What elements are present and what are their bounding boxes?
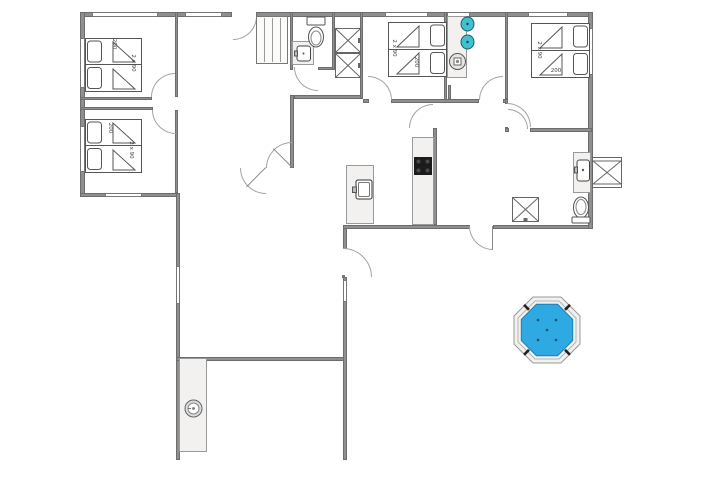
burner — [426, 169, 430, 173]
door-arc-wc — [294, 67, 318, 91]
bed-label: 200 — [551, 68, 562, 74]
toilet-cistern — [307, 17, 325, 25]
pillow — [88, 149, 102, 170]
wall — [391, 99, 479, 103]
door-leaf — [492, 226, 493, 250]
burner — [417, 160, 421, 164]
washing-machine-icon — [448, 52, 467, 71]
door-arc-terrace-east — [343, 248, 372, 277]
wall — [448, 85, 451, 99]
bed-label: 200 — [111, 39, 117, 50]
door-arc-terrace-south — [469, 226, 493, 250]
pillow — [574, 26, 588, 47]
window — [343, 280, 347, 302]
wall — [80, 97, 152, 100]
door-arc-kitchen — [409, 104, 433, 128]
window — [528, 12, 568, 17]
twin-basins-icon — [459, 16, 477, 52]
wall — [343, 225, 470, 229]
hot-tub-icon — [514, 297, 580, 363]
wardrobe-x-icon — [335, 28, 361, 53]
wall — [493, 225, 593, 229]
bed-label: 200 — [107, 123, 113, 134]
window — [185, 12, 222, 17]
faucet — [353, 187, 357, 193]
bed-label: 2 x 90 — [536, 41, 542, 58]
wardrobe-door-line — [264, 18, 265, 62]
wardrobe-door-line — [272, 18, 273, 62]
shower-x-icon — [512, 197, 539, 222]
bed-label: 2 x 90 — [391, 39, 397, 56]
bed-label: 2 x 90 — [130, 54, 136, 71]
window — [176, 266, 180, 304]
pillow — [431, 25, 445, 46]
door-hinge — [342, 275, 345, 278]
pillow — [431, 53, 445, 74]
wardrobe-door-line — [280, 18, 281, 62]
washbasin-icon — [574, 158, 592, 184]
door-arc-bathroom — [479, 76, 503, 100]
cooktop-icon — [414, 157, 432, 175]
knob — [524, 218, 528, 222]
pillow — [88, 122, 102, 143]
toilet-icon — [570, 196, 592, 224]
sliding-wardrobe-icon — [256, 16, 288, 64]
washbasin-icon — [294, 44, 314, 64]
floor-plan: 200 2 x 90 200 2 x 90 2 x 90 200 2 x 90 … — [0, 0, 718, 479]
wall — [175, 12, 178, 97]
door-arc-bedroom-top-left — [151, 73, 175, 97]
wall — [343, 277, 347, 460]
wall — [80, 107, 153, 110]
faucet — [295, 51, 298, 56]
knob — [358, 63, 361, 68]
window — [105, 193, 142, 197]
wall — [505, 12, 508, 99]
burner — [426, 160, 430, 164]
wall — [530, 128, 592, 132]
wardrobe-x-icon — [335, 53, 361, 78]
window — [92, 12, 158, 17]
door-arc-bedroom-bottom-left — [152, 110, 176, 134]
pillow — [88, 68, 102, 89]
round-fixture-icon — [184, 399, 203, 418]
knob — [358, 38, 361, 43]
toilet-cistern — [572, 217, 590, 223]
wall — [294, 95, 362, 99]
bed-label: 200 — [413, 57, 419, 68]
door-arc-bedroom-top-middle — [368, 76, 392, 100]
pillow — [88, 41, 102, 62]
door-arc-entry — [233, 16, 257, 40]
kitchen-sink-icon — [352, 179, 374, 201]
pillow — [574, 54, 588, 75]
outdoor-box-x-icon — [592, 157, 622, 188]
window — [385, 12, 428, 17]
kitchen-counter — [412, 137, 434, 225]
burner — [417, 169, 421, 173]
bed-label: 2 x 90 — [128, 141, 134, 158]
faucet — [575, 167, 578, 173]
